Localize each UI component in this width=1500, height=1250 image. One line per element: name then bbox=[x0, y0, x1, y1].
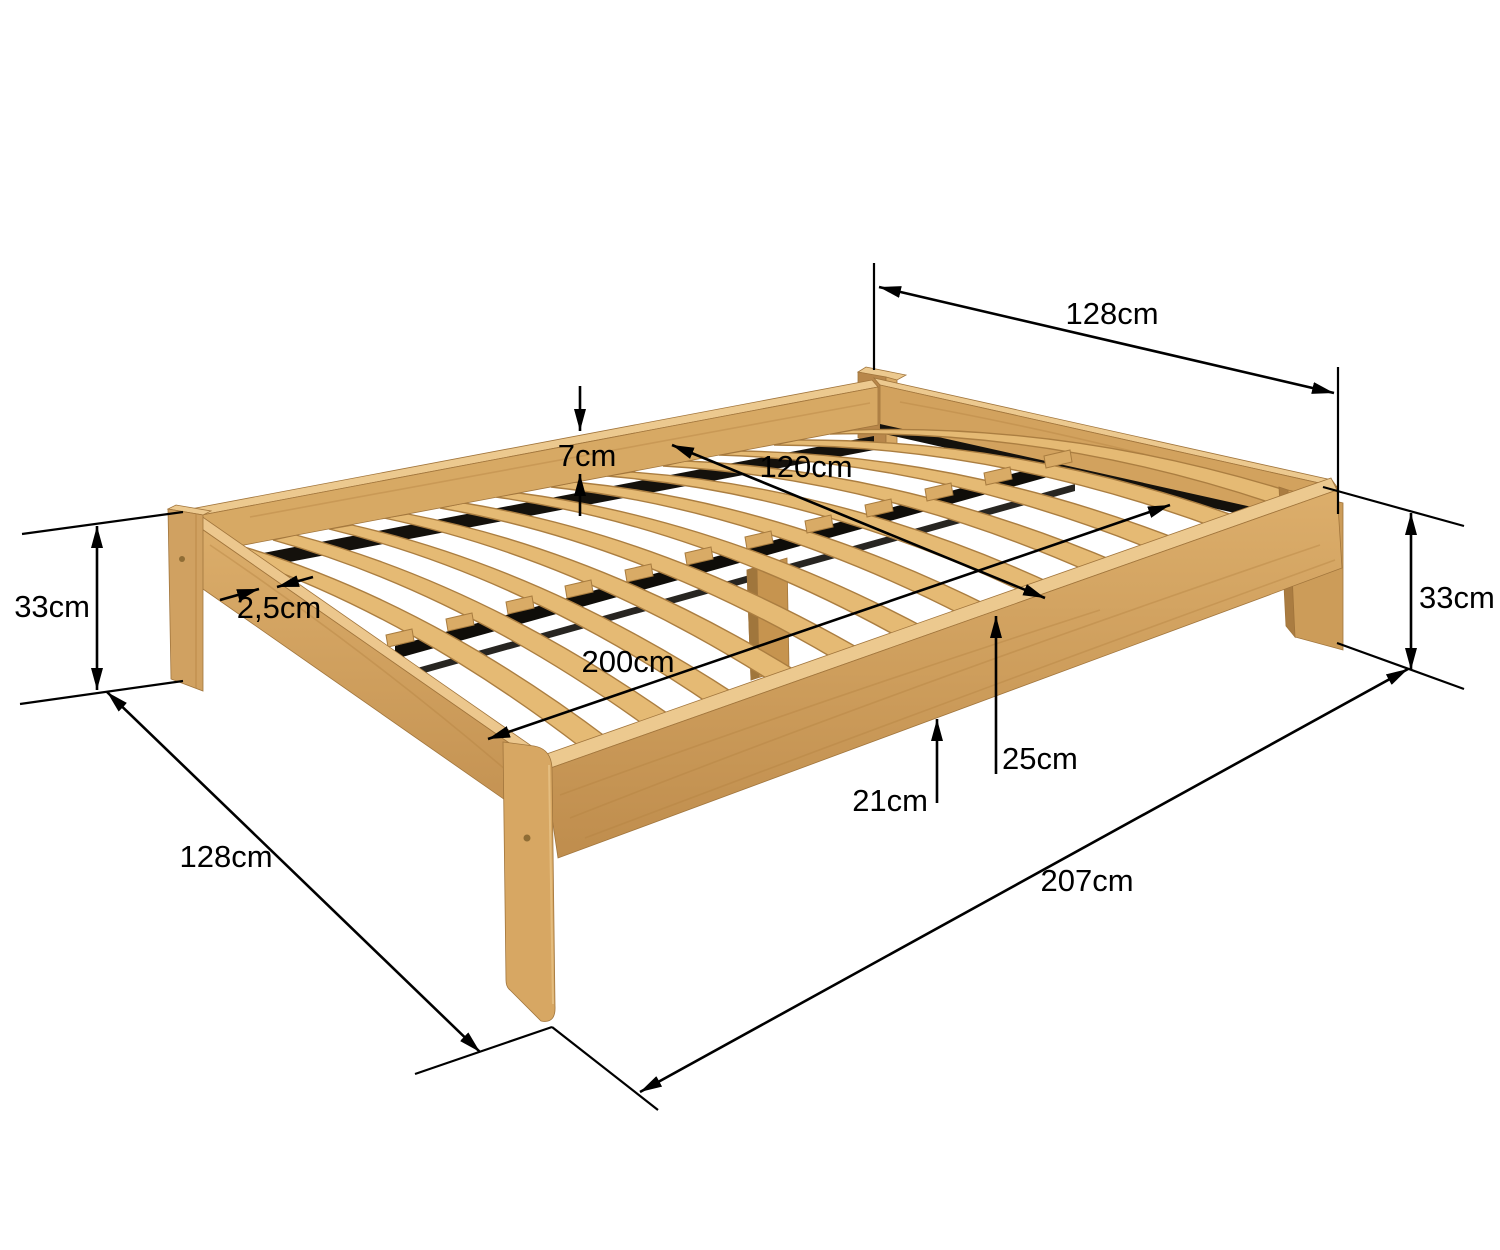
dim-label-slat-top-height: 25cm bbox=[1002, 741, 1078, 776]
dim-label-inner-width: 120cm bbox=[759, 449, 852, 484]
dim-label-slat-thickness: 2,5cm bbox=[237, 590, 321, 625]
dim-label-total-length: 207cm bbox=[1040, 863, 1133, 898]
dim-foot-end-width: 128cm bbox=[107, 692, 480, 1052]
screw-icon bbox=[179, 556, 185, 562]
dim-head-end-width: 128cm bbox=[879, 287, 1334, 393]
bed-illustration bbox=[168, 367, 1343, 1021]
dim-label-head-leg-height: 33cm bbox=[1419, 580, 1495, 615]
diagram-canvas: 128cm 33cm 128cm 207cm 33cm 120cm bbox=[0, 0, 1500, 1250]
extension-line bbox=[415, 1027, 552, 1074]
extension-line bbox=[22, 512, 183, 534]
dim-label-head-end-width: 128cm bbox=[1065, 296, 1158, 331]
dim-foot-leg-height: 33cm bbox=[14, 526, 97, 690]
bed-front-leg bbox=[503, 742, 555, 1021]
extension-line bbox=[20, 681, 183, 704]
screw-icon bbox=[524, 835, 531, 842]
dim-label-foot-leg-height: 33cm bbox=[14, 589, 90, 624]
dim-label-foot-end-width: 128cm bbox=[179, 839, 272, 874]
dim-label-inner-length: 200cm bbox=[581, 644, 674, 679]
extension-line bbox=[1323, 487, 1464, 526]
extension-line bbox=[1337, 643, 1464, 689]
bed-dimension-diagram: 128cm 33cm 128cm 207cm 33cm 120cm bbox=[0, 0, 1500, 1250]
extension-line bbox=[552, 1027, 658, 1110]
dim-label-rail-above-slats: 7cm bbox=[558, 438, 617, 473]
dim-label-under-frame-clearance: 21cm bbox=[852, 783, 928, 818]
dim-head-leg-height: 33cm bbox=[1411, 513, 1495, 670]
